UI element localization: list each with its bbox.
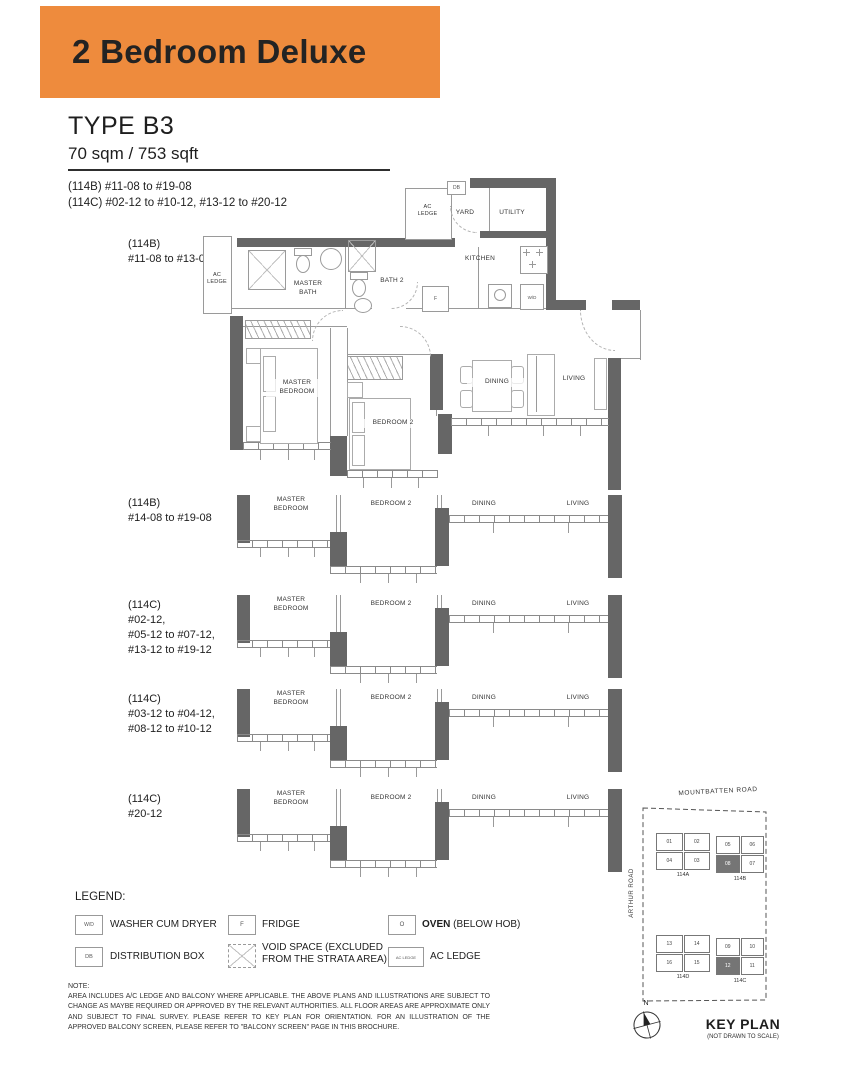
wall-segment — [470, 178, 556, 188]
window-tick — [360, 768, 361, 777]
window-tick — [416, 868, 417, 877]
window-tick — [288, 842, 289, 851]
room-label-ac-ledge-top: AC LEDGE — [407, 204, 448, 219]
room-label-dining: DINING — [449, 694, 519, 703]
bedroom2-door-arc — [400, 326, 431, 357]
legend-void-symbol — [228, 944, 256, 968]
window-tick — [580, 426, 581, 436]
window-tick — [416, 574, 417, 583]
unit-box: 15 — [684, 954, 711, 972]
title-banner: 2 Bedroom Deluxe — [40, 6, 440, 98]
window-strip — [330, 666, 437, 674]
toilet-bowl-icon — [296, 255, 310, 273]
room-label-bedroom2: BEDROOM 2 — [356, 500, 426, 509]
sofa — [527, 354, 555, 416]
wall-segment — [480, 231, 546, 238]
wall-line — [230, 308, 372, 309]
room-label-master-bath: MASTER BATH — [284, 280, 332, 298]
unit-box: 01 — [656, 833, 683, 851]
shower-icon — [348, 240, 376, 272]
window-tick — [288, 548, 289, 557]
wall-segment — [435, 702, 449, 760]
fridge-box: F — [422, 286, 449, 312]
wall-segment — [230, 316, 243, 450]
window-tick — [260, 842, 261, 851]
room-label-bedroom2: BEDROOM 2 — [356, 794, 426, 803]
wall-segment — [430, 354, 443, 410]
building-cluster-114a: 01 02 04 03 — [656, 833, 710, 870]
legend-oven-rest: (BELOW HOB) — [450, 919, 520, 930]
wall-line — [441, 689, 442, 703]
road-label-arthur: ARTHUR ROAD — [629, 863, 639, 923]
divider-rule — [68, 169, 390, 171]
note-body: AREA INCLUDES A/C LEDGE AND BALCONY WHER… — [68, 992, 490, 1034]
room-label-yard: YARD — [445, 209, 485, 218]
legend-oven-label: OVEN (BELOW HOB) — [422, 919, 520, 931]
room-label-bath2: BATH 2 — [368, 277, 416, 286]
pillow — [352, 402, 365, 433]
wall-line — [340, 689, 341, 727]
wardrobe — [245, 320, 311, 339]
wall-segment — [330, 826, 347, 860]
wall-segment — [330, 632, 347, 666]
cluster-name: 114D — [656, 974, 710, 980]
hob-burner-icon — [536, 249, 543, 256]
type-label: TYPE B3 — [68, 112, 174, 141]
window-tick — [314, 842, 315, 851]
wall-line — [340, 789, 341, 827]
room-label-utility: UTILITY — [488, 209, 536, 218]
area-label: 70 sqm / 753 sqft — [68, 144, 198, 164]
wall-line — [330, 328, 331, 436]
db-box: DB — [447, 181, 466, 195]
unit-box: 03 — [684, 852, 711, 870]
wall-segment — [330, 532, 347, 566]
window-tick — [288, 742, 289, 751]
room-label-master-bedroom: MASTER BEDROOM — [266, 379, 328, 397]
legend-oven-bold: OVEN — [422, 919, 450, 930]
wall-segment — [237, 495, 250, 543]
toilet-bowl-icon — [352, 279, 366, 297]
basin-icon — [320, 248, 342, 270]
wall-line — [621, 358, 640, 359]
wall-line — [441, 595, 442, 609]
building-cluster-114b: 05 06 08 07 — [716, 836, 764, 873]
compass-icon — [632, 1010, 662, 1040]
room-label-master-bedroom: MASTER BEDROOM — [256, 690, 326, 708]
window-tick — [314, 548, 315, 557]
room-label-kitchen: KITCHEN — [456, 255, 504, 264]
window-strip — [449, 709, 608, 717]
room-label-bedroom2: BEDROOM 2 — [361, 419, 425, 428]
wall-line — [336, 595, 337, 633]
unit-box: 07 — [741, 855, 765, 873]
room-label-master-bedroom: MASTER BEDROOM — [256, 596, 326, 614]
wall-line — [437, 495, 438, 509]
window-tick — [568, 717, 569, 727]
legend-wd-label: WASHER CUM DRYER — [110, 919, 217, 931]
wall-line — [336, 495, 337, 533]
wall-segment — [608, 358, 621, 490]
window-strip — [330, 760, 437, 768]
room-label-living: LIVING — [543, 694, 613, 703]
wall-line — [345, 247, 346, 308]
window-tick — [416, 674, 417, 683]
building-cluster-114c: 09 10 12 11 — [716, 938, 764, 975]
wall-line — [437, 689, 438, 703]
entrance-door-arc — [580, 310, 615, 351]
variant-plan-4: MASTER BEDROOM BEDROOM 2 DINING LIVING — [148, 786, 663, 881]
wardrobe — [347, 356, 403, 380]
wall-segment — [330, 726, 347, 760]
wall-line — [441, 789, 442, 803]
room-label-bedroom2: BEDROOM 2 — [356, 694, 426, 703]
room-label-dining: DINING — [449, 600, 519, 609]
window-tick — [416, 768, 417, 777]
window-tick — [288, 450, 289, 460]
window-tick — [314, 648, 315, 657]
window-tick — [418, 478, 419, 488]
variant-plan-3: MASTER BEDROOM BEDROOM 2 DINING LIVING — [148, 686, 663, 781]
window-tick — [314, 742, 315, 751]
room-label-living: LIVING — [543, 794, 613, 803]
wall-segment — [556, 300, 586, 310]
wall-line — [336, 789, 337, 827]
legend-ac-ledge-symbol: AC LEDGE — [388, 947, 424, 967]
sink-bowl-icon — [494, 289, 506, 301]
window-tick — [260, 742, 261, 751]
window-strip — [330, 566, 437, 574]
window-strip — [330, 860, 437, 868]
window-tick — [314, 450, 315, 460]
wall-line — [640, 310, 641, 360]
wall-segment — [237, 595, 250, 643]
brochure-page: 2 Bedroom Deluxe TYPE B3 70 sqm / 753 sq… — [0, 0, 850, 1071]
bath2-door-arc — [391, 282, 418, 309]
wall-segment — [435, 508, 449, 566]
cluster-name: 114A — [656, 872, 710, 878]
room-label-living: LIVING — [543, 500, 613, 509]
window-tick — [363, 478, 364, 488]
window-tick — [488, 426, 489, 436]
window-tick — [568, 523, 569, 533]
room-label-ac-ledge-left: AC LEDGE — [195, 272, 239, 287]
unit-box: 14 — [684, 935, 711, 953]
window-strip — [237, 640, 330, 648]
note-title: NOTE: — [68, 983, 89, 990]
wall-segment — [438, 414, 452, 454]
room-label-living: LIVING — [544, 375, 604, 384]
room-label-dining: DINING — [449, 794, 519, 803]
chair — [511, 390, 524, 408]
cluster-name: 114B — [716, 876, 764, 882]
unit-box: 11 — [741, 957, 765, 975]
pillow — [263, 396, 276, 432]
unit-box: 06 — [741, 836, 765, 854]
main-floor-plan: DB F W/D AC L — [148, 176, 668, 492]
variant-plan-1: MASTER BEDROOM BEDROOM 2 DINING LIVING — [148, 492, 663, 587]
unit-box: 10 — [741, 938, 765, 956]
legend-fridge-label: FRIDGE — [262, 919, 300, 931]
window-tick — [568, 817, 569, 827]
window-tick — [388, 674, 389, 683]
window-tick — [493, 717, 494, 727]
cluster-name: 114C — [716, 978, 764, 984]
window-tick — [493, 523, 494, 533]
legend-title: LEGEND: — [75, 891, 126, 903]
hob-burner-icon — [523, 249, 530, 256]
compass-north-label: N — [639, 1000, 653, 1007]
legend-db-symbol: DB — [75, 947, 103, 967]
washer-dryer-box: W/D — [520, 284, 544, 310]
window-tick — [288, 648, 289, 657]
window-tick — [260, 648, 261, 657]
room-label-bedroom2: BEDROOM 2 — [356, 600, 426, 609]
hob-burner-icon — [529, 261, 536, 268]
window-tick — [543, 426, 544, 436]
room-label-living: LIVING — [543, 600, 613, 609]
unit-box-highlighted: 08 — [716, 855, 740, 873]
wall-segment — [612, 300, 640, 310]
window-strip — [449, 515, 608, 523]
page-title: 2 Bedroom Deluxe — [72, 33, 367, 71]
window-strip — [237, 734, 330, 742]
wall-line — [340, 595, 341, 633]
wall-line — [340, 495, 341, 533]
wall-segment — [546, 178, 556, 310]
room-label-master-bedroom: MASTER BEDROOM — [256, 496, 326, 514]
legend-db-label: DISTRIBUTION BOX — [110, 951, 204, 963]
unit-box: 05 — [716, 836, 740, 854]
chair — [460, 390, 473, 408]
window-tick — [360, 868, 361, 877]
window-tick — [388, 574, 389, 583]
nightstand — [347, 382, 363, 398]
window-tick — [260, 548, 261, 557]
window-tick — [493, 623, 494, 633]
building-cluster-114d: 13 14 16 15 — [656, 935, 710, 972]
window-strip — [347, 470, 438, 478]
wall-segment — [435, 802, 449, 860]
legend-void-label: VOID SPACE (EXCLUDED FROM THE STRATA ARE… — [262, 942, 387, 966]
window-strip — [451, 418, 609, 426]
wall-segment — [330, 436, 347, 476]
master-door-arc — [312, 310, 343, 341]
legend-fridge-symbol: F — [228, 915, 256, 935]
window-strip — [449, 809, 608, 817]
sofa-seat-line — [536, 356, 537, 412]
window-tick — [388, 868, 389, 877]
wall-segment — [237, 689, 250, 737]
legend-oven-symbol: O — [388, 915, 416, 935]
unit-box: 04 — [656, 852, 683, 870]
window-tick — [391, 478, 392, 488]
wall-line — [437, 789, 438, 803]
variant-plan-2: MASTER BEDROOM BEDROOM 2 DINING LIVING — [148, 592, 663, 687]
legend-wd-symbol: W/D — [75, 915, 103, 935]
pillow — [352, 435, 365, 466]
window-tick — [360, 574, 361, 583]
basin-icon — [354, 298, 372, 313]
tv-console — [594, 358, 607, 410]
room-label-dining: DINING — [467, 378, 527, 387]
wall-line — [437, 595, 438, 609]
wall-segment — [237, 789, 250, 837]
shower-icon — [248, 250, 286, 290]
window-tick — [493, 817, 494, 827]
unit-box: 16 — [656, 954, 683, 972]
keyplan-subtitle: (NOT DRAWN TO SCALE) — [683, 1034, 803, 1040]
window-strip — [237, 540, 330, 548]
wall-line — [336, 689, 337, 727]
unit-box: 13 — [656, 935, 683, 953]
wall-segment — [435, 608, 449, 666]
window-tick — [388, 768, 389, 777]
key-plan: MOUNTBATTEN ROAD ARTHUR ROAD 01 02 04 03… — [628, 788, 850, 1071]
unit-box: 09 — [716, 938, 740, 956]
unit-box-highlighted: 12 — [716, 957, 740, 975]
window-tick — [260, 450, 261, 460]
wall-line — [441, 495, 442, 509]
wall-line — [436, 410, 437, 416]
keyplan-title: KEY PLAN — [683, 1016, 803, 1032]
window-tick — [568, 623, 569, 633]
room-label-dining: DINING — [449, 500, 519, 509]
window-strip — [449, 615, 608, 623]
unit-box: 02 — [684, 833, 711, 851]
legend-ac-ledge-label: AC LEDGE — [430, 951, 481, 963]
window-strip — [237, 834, 330, 842]
room-label-master-bedroom: MASTER BEDROOM — [256, 790, 326, 808]
window-tick — [360, 674, 361, 683]
